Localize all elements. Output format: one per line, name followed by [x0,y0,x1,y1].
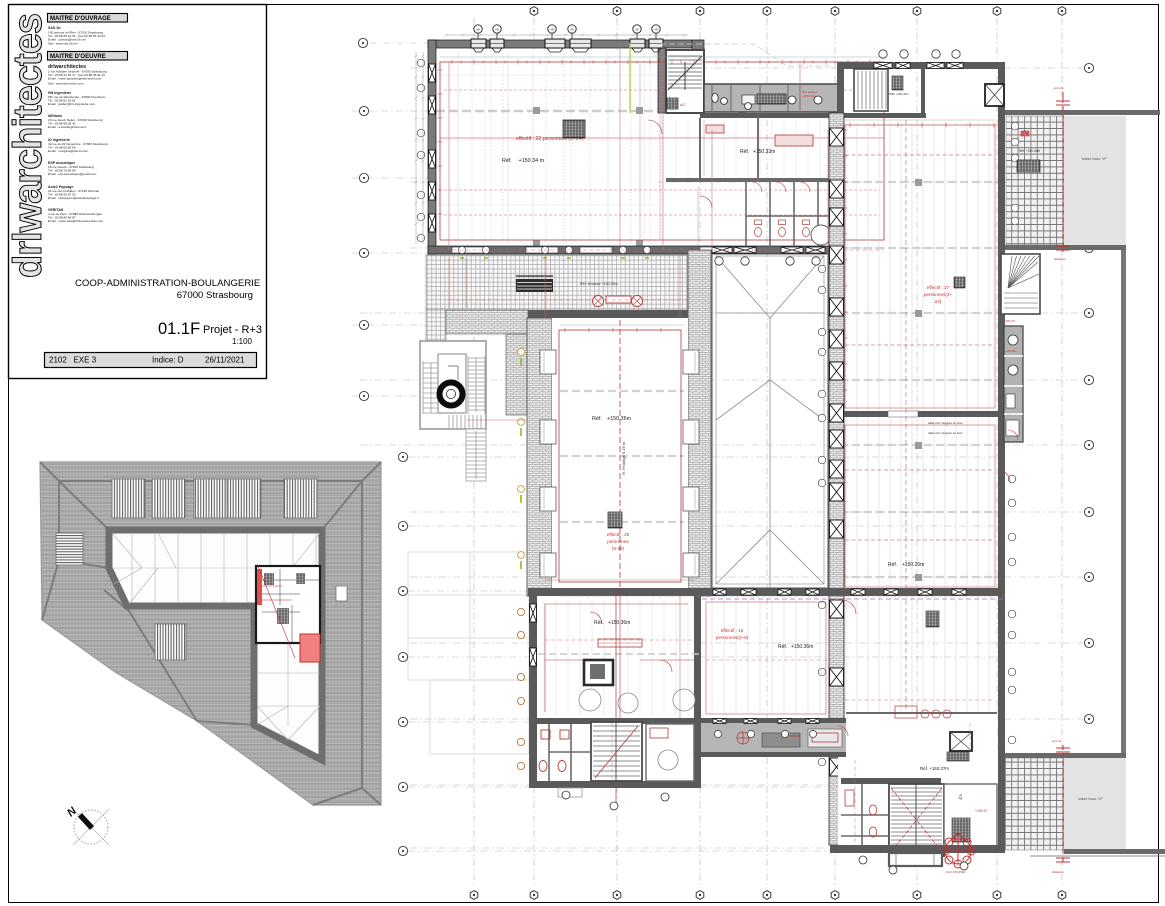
svg-text:dilatation: dilatation [1052,870,1064,874]
svg-text:Réf. +150.35m: Réf. +150.35m [888,562,924,568]
svg-text:Projet - R+3: Projet - R+3 [203,324,262,336]
svg-text:joint de: joint de [1051,739,1062,743]
svg-text:drlwarchitectes: drlwarchitectes [6,14,50,278]
svg-text:1:100: 1:100 [232,337,253,346]
svg-text:Réf. +150.36m: Réf. +150.36m [778,644,813,650]
svg-text:personnes(2+9): personnes(2+9) [716,635,749,640]
svg-text:Réf. +150.33m: Réf. +150.33m [740,149,775,155]
svg-text:24): 24) [935,299,942,304]
svg-text:MAITRE D'OUVRAGE: MAITRE D'OUVRAGE [50,16,111,22]
svg-text:Email : marie.goeplert@drlw-ar: Email : marie.goeplert@drlw-archi.com [48,77,102,81]
svg-text:COOP-ADMINISTRATION-BOULANGERI: COOP-ADMINISTRATION-BOULANGERIE [75,278,260,289]
svg-text:+150.33m: +150.33m [1005,349,1017,353]
svg-text:dalle 2cm réagréé en bois: dalle 2cm réagréé en bois [928,421,963,425]
svg-text:Email : morgane@bat-bi.com: Email : morgane@bat-bi.com [48,149,89,153]
svg-text:Indice: D: Indice: D [152,356,184,365]
svg-text:Site : www.sas-2b.net: Site : www.sas-2b.net [48,41,78,45]
svg-text:Réf. +150.37m: Réf. +150.37m [920,766,949,771]
svg-text:+150.37: +150.37 [975,809,987,813]
svg-text:26/11/2021: 26/11/2021 [205,356,245,365]
svg-text:01.1F: 01.1F [158,320,200,338]
svg-text:(9-69): (9-69) [612,546,625,551]
svg-text:Site : www.drlw-archi.com: Site : www.drlw-archi.com [48,82,84,86]
svg-text:AB: AB [476,28,480,32]
svg-text:toiture inacc. VP: toiture inacc. VP [1078,797,1103,801]
svg-text:dilatation: dilatation [1054,257,1066,261]
svg-text:Email : marie.sata@frhureauver: Email : marie.sata@frhureauveritas.com [48,219,104,223]
svg-text:67000 Strasbourg: 67000 Strasbourg [177,290,253,301]
svg-text:personnes(3+: personnes(3+ [924,292,953,297]
svg-text:MAITRE D'OEUVRE: MAITRE D'OEUVRE [50,54,106,60]
svg-text:toiture inacc. VP: toiture inacc. VP [1082,157,1107,161]
svg-text:Réf. +150.36m: Réf. +150.36m [592,416,632,422]
svg-text:joint de: joint de [1053,86,1064,90]
svg-text:personnes: personnes [607,539,629,544]
svg-text:effectif : 27: effectif : 27 [927,285,950,290]
svg-text:4: 4 [958,793,963,802]
svg-text:AC3 150.35E2: AC3 150.35E2 [946,870,966,874]
svg-text:effectif : 15: effectif : 15 [721,628,744,633]
svg-text:AB: AB [654,28,658,32]
svg-text:dalle 2cm réagréé en bois: dalle 2cm réagréé en bois [928,431,963,435]
svg-text:+150.33: +150.33 [1004,319,1015,323]
svg-text:AB: AB [570,28,574,32]
svg-text:Email : carpegreco@acte2paysag: Email : carpegreco@acte2paysage.fr [48,196,99,200]
svg-text:Email : jwalter@hn-ingenierie.: Email : jwalter@hn-ingenierie.com [48,102,95,106]
svg-text:AB: AB [495,28,499,32]
svg-text:H. Feutage 9,16 m: H. Feutage 9,16 m [621,441,626,475]
svg-text:Réf. +150.34 m: Réf. +150.34 m [502,158,545,164]
svg-text:Réf. terrasse +150.05m: Réf. terrasse +150.05m [580,282,618,286]
svg-text:2102 EXE 3: 2102 EXE 3 [49,356,97,365]
svg-text:Email : a.boulan@itemme.fr: Email : a.boulan@itemme.fr [48,125,86,129]
svg-text:PMR +150.33m: PMR +150.33m [888,92,909,96]
svg-text:effectif: effectif [790,734,800,738]
svg-text:Email : esp.acoustique@gmail.c: Email : esp.acoustique@gmail.com [48,172,97,176]
svg-text:SAS 2b: SAS 2b [48,26,61,30]
svg-text:ALT: ALT [680,103,686,107]
svg-text:AB: AB [550,28,554,32]
svg-text:Réf. +150.33m: Réf. +150.33m [1019,149,1040,153]
svg-text:AB: AB [635,28,639,32]
svg-text:Réf. +150.36m: Réf. +150.36m [594,620,630,626]
svg-text:+150.33m: +150.33m [802,94,816,98]
svg-text:effectif : 26: effectif : 26 [607,532,630,537]
